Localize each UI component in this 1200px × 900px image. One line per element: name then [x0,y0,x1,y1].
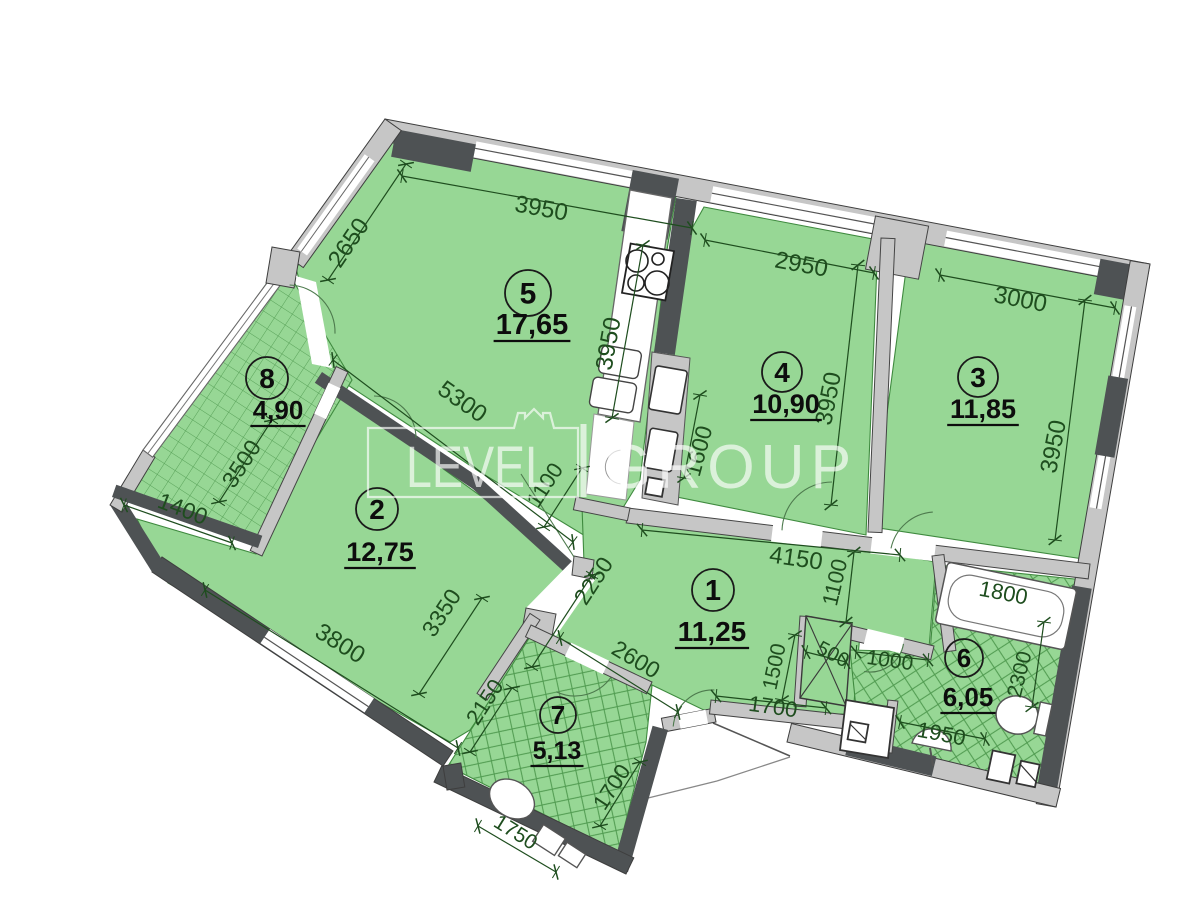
svg-text:7: 7 [551,700,565,730]
svg-text:5: 5 [520,278,537,311]
svg-text:8: 8 [259,363,275,394]
svg-text:5,13: 5,13 [533,737,582,765]
svg-text:4: 4 [774,357,790,388]
svg-text:11,85: 11,85 [950,394,1016,424]
svg-text:GROUP: GROUP [604,433,857,502]
svg-text:10,90: 10,90 [752,389,820,419]
svg-text:6: 6 [957,643,971,673]
svg-text:3: 3 [970,362,986,393]
svg-text:4,90: 4,90 [253,395,304,425]
svg-text:11,25: 11,25 [678,616,747,647]
svg-text:17,65: 17,65 [496,309,569,341]
svg-text:LEVEL: LEVEL [406,435,551,500]
svg-text:6,05: 6,05 [943,682,994,712]
svg-text:2: 2 [369,494,385,525]
svg-text:12,75: 12,75 [346,537,414,567]
svg-text:1: 1 [705,575,721,607]
